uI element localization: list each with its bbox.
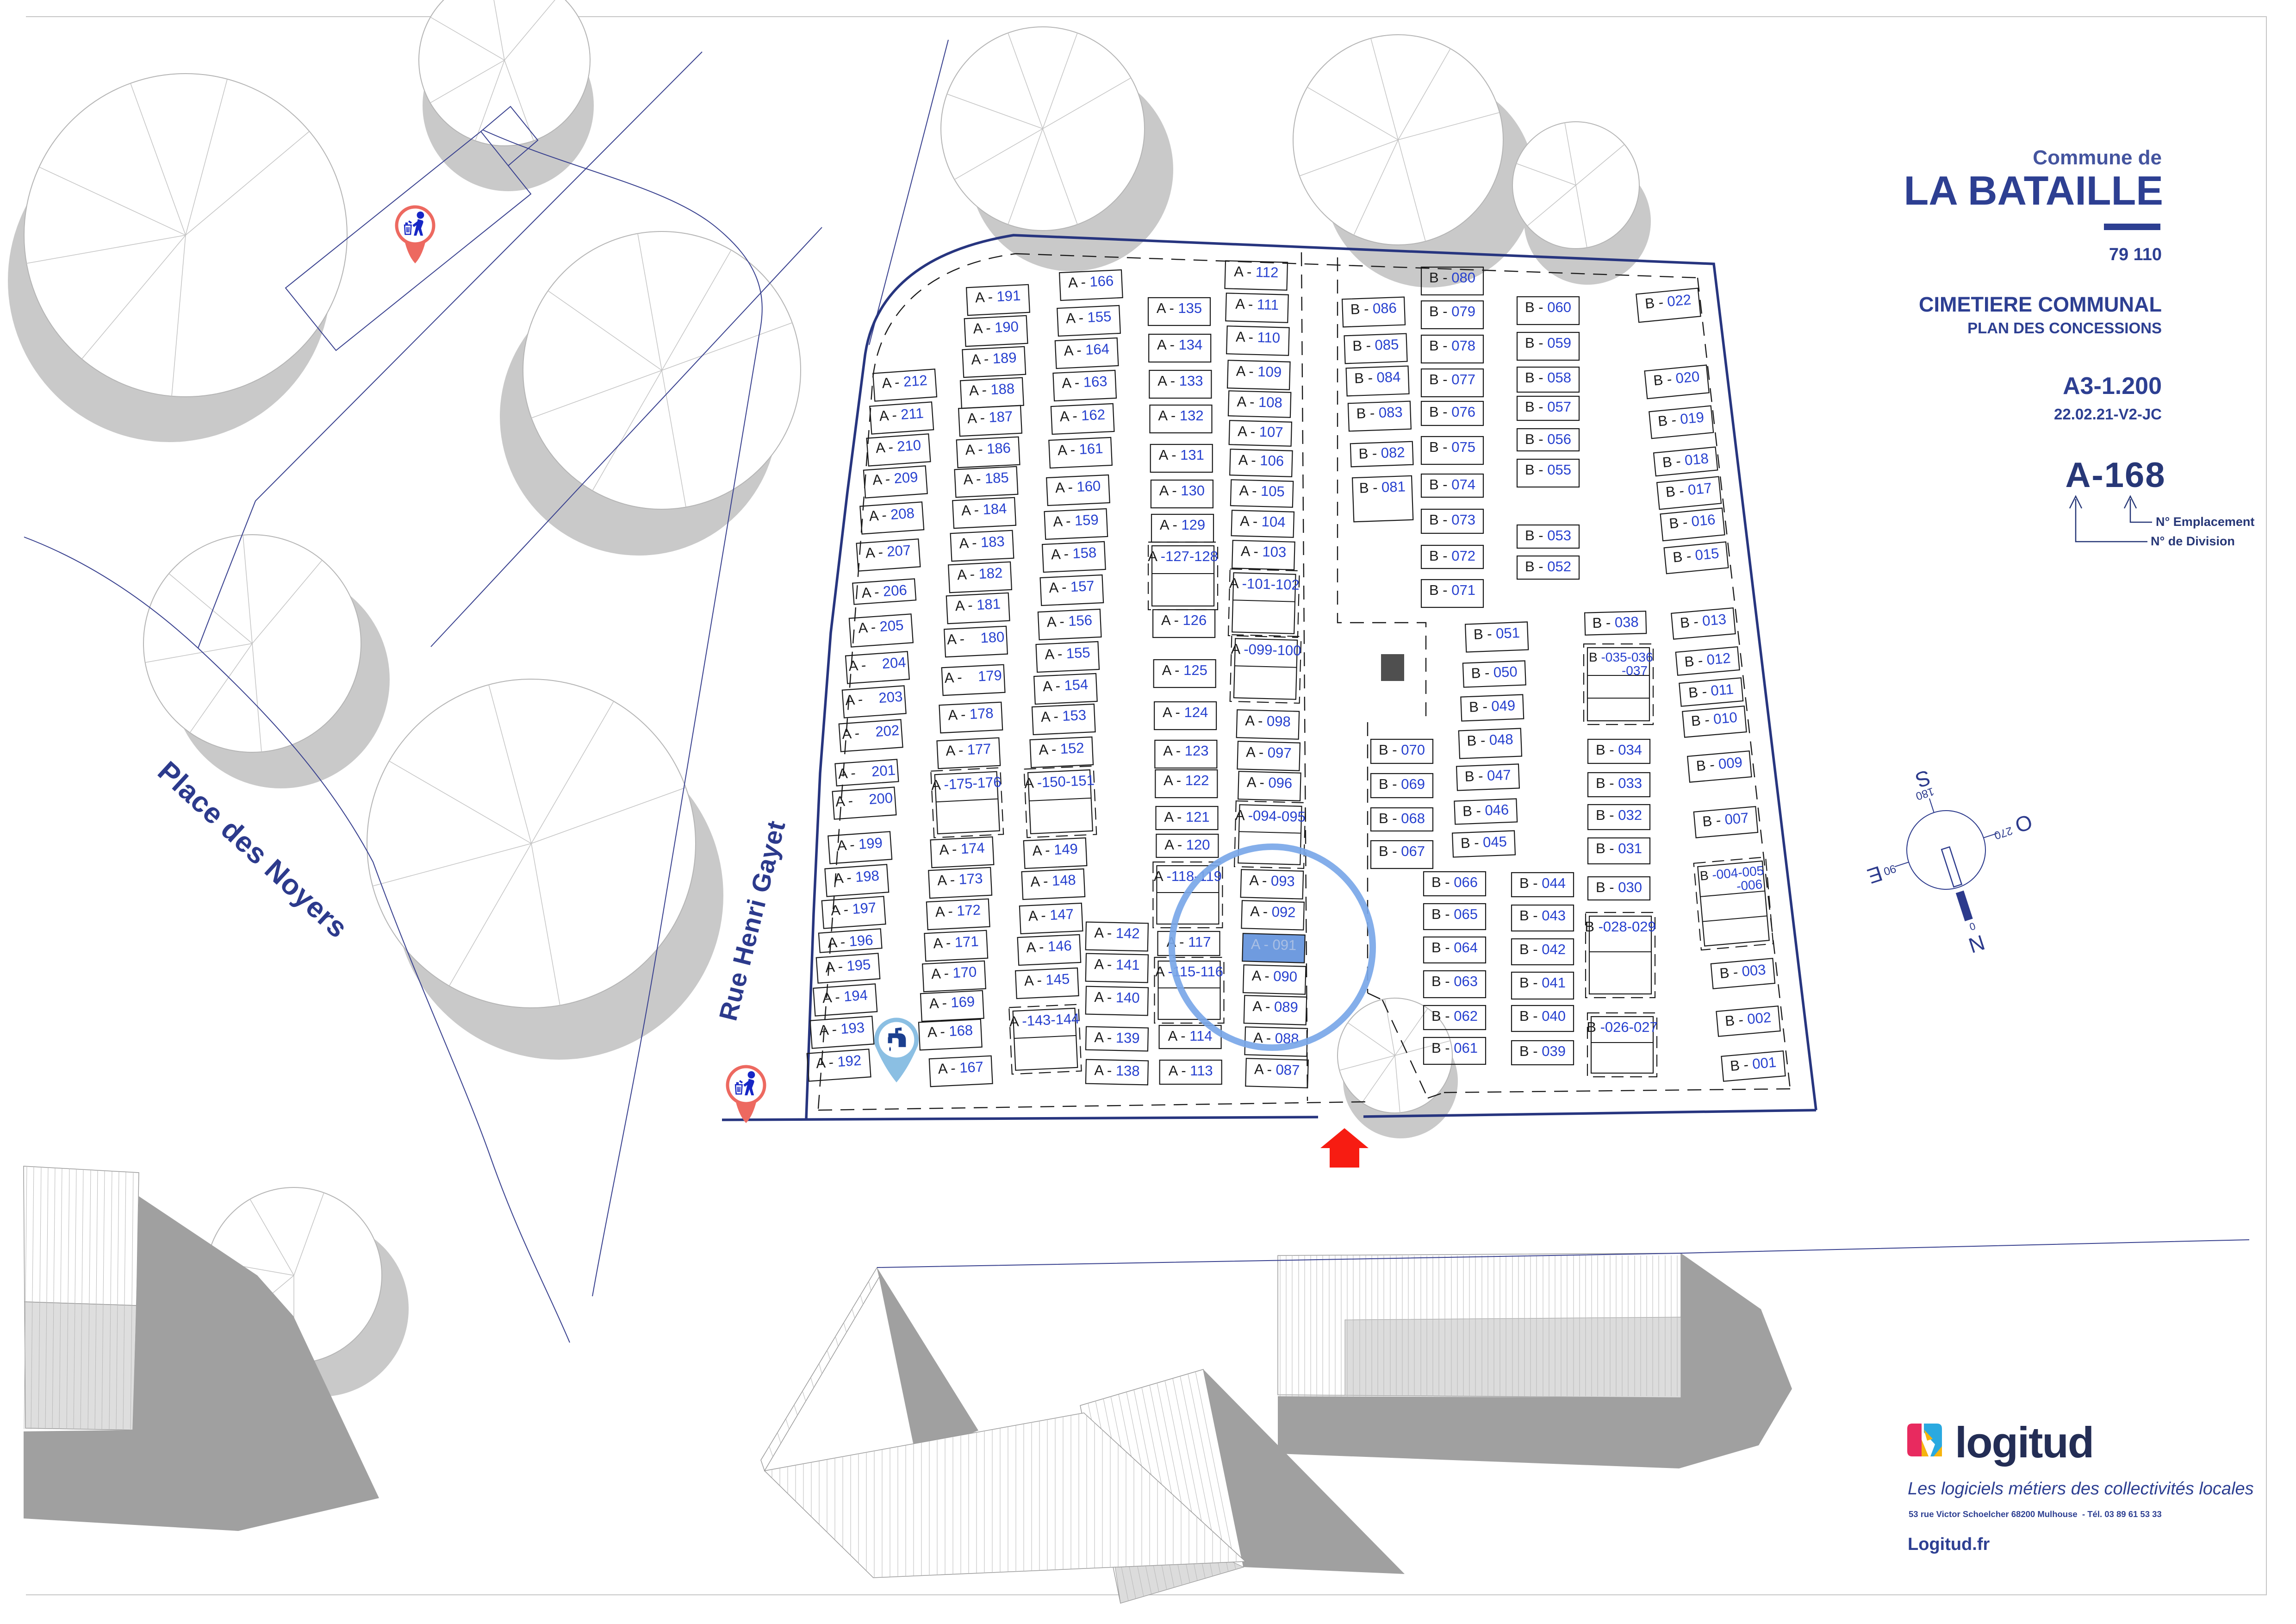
svg-text:B -035-036: B -035-036 xyxy=(1589,650,1653,664)
svg-text:A -127-128: A -127-128 xyxy=(1148,548,1218,564)
svg-text:A - 172: A - 172 xyxy=(935,902,981,920)
svg-text:B - 070: B - 070 xyxy=(1379,742,1425,758)
svg-text:A - 207: A - 207 xyxy=(865,542,911,562)
svg-text:A - 212: A - 212 xyxy=(881,372,927,392)
svg-text:A - 170: A - 170 xyxy=(931,964,977,982)
svg-text:A -094-095: A -094-095 xyxy=(1235,807,1306,825)
svg-text:A - 129: A - 129 xyxy=(1160,517,1205,533)
svg-text:B - 044: B - 044 xyxy=(1519,875,1566,891)
svg-text:A - 167: A - 167 xyxy=(938,1059,984,1077)
svg-text:A - 138: A - 138 xyxy=(1094,1062,1140,1079)
svg-text:B - 083: B - 083 xyxy=(1356,404,1403,421)
svg-text:-037: -037 xyxy=(1622,663,1648,678)
svg-text:A - 191: A - 191 xyxy=(975,287,1021,306)
svg-text:A - 090: A - 090 xyxy=(1251,968,1297,985)
svg-text:A - 155: A - 155 xyxy=(1065,308,1112,326)
svg-text:PLAN DES CONCESSIONS: PLAN DES CONCESSIONS xyxy=(1967,319,2162,337)
svg-text:A - 166: A - 166 xyxy=(1068,273,1114,291)
svg-text:B - 042: B - 042 xyxy=(1519,941,1566,957)
svg-text:B - 072: B - 072 xyxy=(1429,548,1475,564)
svg-text:B - 043: B - 043 xyxy=(1519,907,1566,924)
svg-text:B - 073: B - 073 xyxy=(1429,512,1475,528)
svg-text:A - 114: A - 114 xyxy=(1168,1028,1213,1044)
svg-text:B - 032: B - 032 xyxy=(1596,807,1642,823)
svg-text:A - 131: A - 131 xyxy=(1159,447,1204,463)
svg-text:A - 161: A - 161 xyxy=(1057,440,1103,458)
svg-text:B - 064: B - 064 xyxy=(1431,939,1478,956)
svg-text:B - 081: B - 081 xyxy=(1359,478,1406,496)
svg-text:A - 205: A - 205 xyxy=(858,617,904,637)
svg-text:B - 040: B - 040 xyxy=(1519,1008,1566,1024)
svg-text:B - 049: B - 049 xyxy=(1469,697,1516,715)
svg-text:A - 098: A - 098 xyxy=(1245,712,1291,730)
svg-text:A - 125: A - 125 xyxy=(1162,662,1207,678)
svg-text:A - 122: A - 122 xyxy=(1164,772,1209,788)
svg-text:B - 034: B - 034 xyxy=(1596,742,1642,758)
svg-text:53 rue Victor Schoelcher 68200: 53 rue Victor Schoelcher 68200 Mulhouse … xyxy=(1909,1509,2162,1519)
svg-text:A - 111: A - 111 xyxy=(1235,296,1279,313)
svg-text:B - 059: B - 059 xyxy=(1525,335,1571,351)
svg-text:A3-1.200: A3-1.200 xyxy=(2063,373,2162,400)
svg-text:LA BATAILLE: LA BATAILLE xyxy=(1904,168,2163,213)
svg-text:A - 092: A - 092 xyxy=(1250,903,1296,921)
svg-text:A - 198: A - 198 xyxy=(834,868,880,887)
svg-text:B - 055: B - 055 xyxy=(1525,462,1571,478)
svg-text:A - 134: A - 134 xyxy=(1157,337,1202,353)
svg-text:A - 103: A - 103 xyxy=(1241,543,1287,561)
svg-text:B - 074: B - 074 xyxy=(1429,476,1475,493)
svg-text:B - 051: B - 051 xyxy=(1473,625,1520,643)
svg-text:B - 045: B - 045 xyxy=(1460,833,1507,851)
svg-text:Commune de: Commune de xyxy=(2033,146,2162,169)
svg-text:B - 080: B - 080 xyxy=(1429,269,1475,286)
svg-text:22.02.21-V2-JC: 22.02.21-V2-JC xyxy=(2054,406,2162,423)
svg-text:A - 197: A - 197 xyxy=(830,899,877,919)
svg-text:A - 199: A - 199 xyxy=(836,835,883,854)
svg-text:A - 121: A - 121 xyxy=(1164,809,1209,825)
svg-text:A - 185: A - 185 xyxy=(963,469,1009,488)
svg-text:A - 107: A - 107 xyxy=(1238,423,1283,441)
svg-text:A - 208: A - 208 xyxy=(869,505,915,525)
svg-text:A - 105: A - 105 xyxy=(1239,482,1285,500)
svg-text:B - 058: B - 058 xyxy=(1525,369,1571,386)
svg-text:A - 162: A - 162 xyxy=(1059,406,1106,425)
svg-text:A - 087: A - 087 xyxy=(1254,1061,1300,1079)
svg-text:A - 091: A - 091 xyxy=(1251,936,1297,954)
svg-text:A - 186: A - 186 xyxy=(965,440,1011,458)
svg-text:B - 033: B - 033 xyxy=(1596,775,1642,791)
svg-text:A - 089: A - 089 xyxy=(1252,998,1298,1016)
svg-text:A - 188: A - 188 xyxy=(969,381,1015,399)
svg-text:A - 120: A - 120 xyxy=(1164,837,1210,853)
svg-text:B - 066: B - 066 xyxy=(1431,874,1478,890)
svg-text:A - 130: A - 130 xyxy=(1159,482,1205,499)
svg-text:A - 195: A - 195 xyxy=(825,956,871,976)
svg-text:A - 132: A - 132 xyxy=(1158,407,1203,424)
svg-text:A - 135: A - 135 xyxy=(1157,300,1202,316)
svg-text:B - 038: B - 038 xyxy=(1592,614,1639,631)
svg-text:A - 163: A - 163 xyxy=(1061,373,1108,391)
svg-text:A - 196: A - 196 xyxy=(827,932,873,951)
svg-text:B - 067: B - 067 xyxy=(1379,843,1425,859)
svg-text:A - 104: A - 104 xyxy=(1240,513,1286,531)
svg-text:B - 077: B - 077 xyxy=(1429,371,1475,387)
svg-text:A - 149: A - 149 xyxy=(1032,841,1078,859)
svg-text:B - 079: B - 079 xyxy=(1429,303,1475,319)
svg-text:A - 181: A - 181 xyxy=(955,596,1001,614)
svg-text:A - 193: A - 193 xyxy=(819,1019,865,1039)
svg-text:B - 031: B - 031 xyxy=(1596,840,1642,856)
svg-text:B - 069: B - 069 xyxy=(1379,776,1425,792)
svg-text:A - 147: A - 147 xyxy=(1028,906,1074,924)
svg-text:B - 082: B - 082 xyxy=(1358,444,1405,462)
svg-text:A - 126: A - 126 xyxy=(1161,612,1207,628)
svg-text:B - 062: B - 062 xyxy=(1431,1008,1478,1024)
svg-text:A - 145: A - 145 xyxy=(1024,971,1070,989)
svg-text:A -150-151: A -150-151 xyxy=(1024,772,1095,792)
svg-text:A - 133: A - 133 xyxy=(1157,373,1203,389)
svg-text:A - 142: A - 142 xyxy=(1094,924,1140,942)
svg-text:A - 190: A - 190 xyxy=(973,319,1019,337)
svg-text:logitud: logitud xyxy=(1955,1418,2093,1467)
svg-text:B - 052: B - 052 xyxy=(1525,558,1571,575)
svg-text:B - 060: B - 060 xyxy=(1525,299,1571,315)
svg-text:N° de Division: N° de Division xyxy=(2151,534,2235,548)
svg-text:A - 160: A - 160 xyxy=(1055,478,1101,496)
svg-text:B - 065: B - 065 xyxy=(1431,906,1478,922)
svg-text:A - 184: A - 184 xyxy=(961,500,1007,519)
svg-text:B - 078: B - 078 xyxy=(1429,337,1475,354)
svg-text:A - 123: A - 123 xyxy=(1163,743,1208,759)
svg-text:A - 168: A - 168 xyxy=(927,1022,973,1041)
svg-text:A - 209: A - 209 xyxy=(872,469,918,488)
svg-text:A - 189: A - 189 xyxy=(971,350,1017,368)
svg-text:-006: -006 xyxy=(1736,877,1763,893)
svg-text:B - 041: B - 041 xyxy=(1519,974,1566,991)
svg-text:A - 097: A - 097 xyxy=(1246,744,1292,762)
svg-text:A - 178: A - 178 xyxy=(948,705,994,724)
svg-text:A - 109: A - 109 xyxy=(1236,363,1282,381)
svg-text:B - 063: B - 063 xyxy=(1431,973,1478,989)
svg-text:79 110: 79 110 xyxy=(2109,245,2162,264)
svg-text:A - 206: A - 206 xyxy=(861,582,907,601)
svg-text:B - 068: B - 068 xyxy=(1379,810,1425,826)
svg-text:B - 039: B - 039 xyxy=(1519,1043,1566,1059)
svg-text:A -101-102: A -101-102 xyxy=(1229,575,1300,593)
svg-text:A - 164: A - 164 xyxy=(1064,341,1110,359)
svg-text:A - 146: A - 146 xyxy=(1026,937,1072,956)
svg-text:B - 048: B - 048 xyxy=(1467,731,1513,749)
svg-text:A - 192: A - 192 xyxy=(815,1052,862,1072)
svg-text:B - 061: B - 061 xyxy=(1431,1040,1478,1056)
svg-text:A - 139: A - 139 xyxy=(1094,1029,1140,1046)
svg-text:B - 050: B - 050 xyxy=(1471,663,1518,681)
svg-text:B - 053: B - 053 xyxy=(1525,527,1571,543)
svg-text:B - 030: B - 030 xyxy=(1596,879,1642,895)
svg-text:A - 124: A - 124 xyxy=(1163,704,1208,720)
svg-text:B - 085: B - 085 xyxy=(1352,336,1399,354)
svg-text:A - 210: A - 210 xyxy=(875,437,921,456)
svg-text:A -099-100: A -099-100 xyxy=(1231,641,1301,659)
svg-text:Les logiciels métiers des coll: Les logiciels métiers des collectivités … xyxy=(1908,1479,2254,1499)
svg-text:A - 159: A - 159 xyxy=(1053,512,1099,530)
svg-text:A - 169: A - 169 xyxy=(929,993,975,1012)
svg-text:B -028-029: B -028-029 xyxy=(1585,918,1655,935)
svg-text:B - 084: B - 084 xyxy=(1354,369,1401,386)
svg-text:A -143-144: A -143-144 xyxy=(1009,1011,1080,1030)
svg-text:B - 046: B - 046 xyxy=(1462,801,1509,819)
svg-text:A - 096: A - 096 xyxy=(1247,774,1293,792)
svg-text:B - 075: B - 075 xyxy=(1429,439,1475,455)
svg-text:A -175-176: A -175-176 xyxy=(931,774,1002,793)
svg-text:A - 177: A - 177 xyxy=(946,741,992,759)
svg-text:A - 106: A - 106 xyxy=(1238,452,1284,469)
svg-text:A - 187: A - 187 xyxy=(967,408,1013,427)
svg-text:B - 076: B - 076 xyxy=(1429,404,1475,420)
svg-text:CIMETIERE COMMUNAL: CIMETIERE COMMUNAL xyxy=(1919,293,2162,316)
svg-text:A - 157: A - 157 xyxy=(1049,578,1095,596)
svg-text:A - 155: A - 155 xyxy=(1045,644,1091,662)
svg-text:A - 108: A - 108 xyxy=(1237,394,1282,411)
svg-text:A - 183: A - 183 xyxy=(959,533,1005,552)
svg-text:N° Emplacement: N° Emplacement xyxy=(2156,515,2254,529)
svg-text:B - 086: B - 086 xyxy=(1350,300,1397,317)
svg-text:A - 110: A - 110 xyxy=(1236,329,1281,346)
svg-text:A - 154: A - 154 xyxy=(1042,676,1089,694)
svg-text:A - 148: A - 148 xyxy=(1030,872,1076,890)
svg-text:A-168: A-168 xyxy=(2066,456,2166,495)
svg-text:A - 173: A - 173 xyxy=(937,870,983,889)
svg-text:A - 153: A - 153 xyxy=(1040,707,1087,725)
svg-text:A - 158: A - 158 xyxy=(1051,544,1097,562)
svg-text:A - 152: A - 152 xyxy=(1039,740,1085,758)
svg-text:A - 093: A - 093 xyxy=(1249,872,1295,890)
svg-text:A - 174: A - 174 xyxy=(939,840,985,858)
svg-text:B - 071: B - 071 xyxy=(1429,582,1475,598)
svg-text:A - 113: A - 113 xyxy=(1169,1062,1213,1079)
svg-text:B - 047: B - 047 xyxy=(1464,767,1511,785)
svg-text:A - 140: A - 140 xyxy=(1094,989,1140,1006)
svg-text:B - 056: B - 056 xyxy=(1525,431,1571,447)
svg-text:A - 171: A - 171 xyxy=(933,933,979,952)
svg-text:A - 182: A - 182 xyxy=(957,565,1003,583)
svg-text:B -026-027: B -026-027 xyxy=(1587,1019,1657,1035)
svg-text:A - 141: A - 141 xyxy=(1094,956,1140,973)
svg-text:A - 112: A - 112 xyxy=(1234,263,1279,281)
svg-text:A - 194: A - 194 xyxy=(822,987,868,1006)
svg-text:A -115-116: A -115-116 xyxy=(1155,963,1223,980)
svg-text:A - 211: A - 211 xyxy=(879,405,924,425)
svg-text:A - 156: A - 156 xyxy=(1046,612,1093,630)
svg-text:B - 057: B - 057 xyxy=(1525,399,1571,415)
svg-text:Logitud.fr: Logitud.fr xyxy=(1908,1535,1990,1554)
